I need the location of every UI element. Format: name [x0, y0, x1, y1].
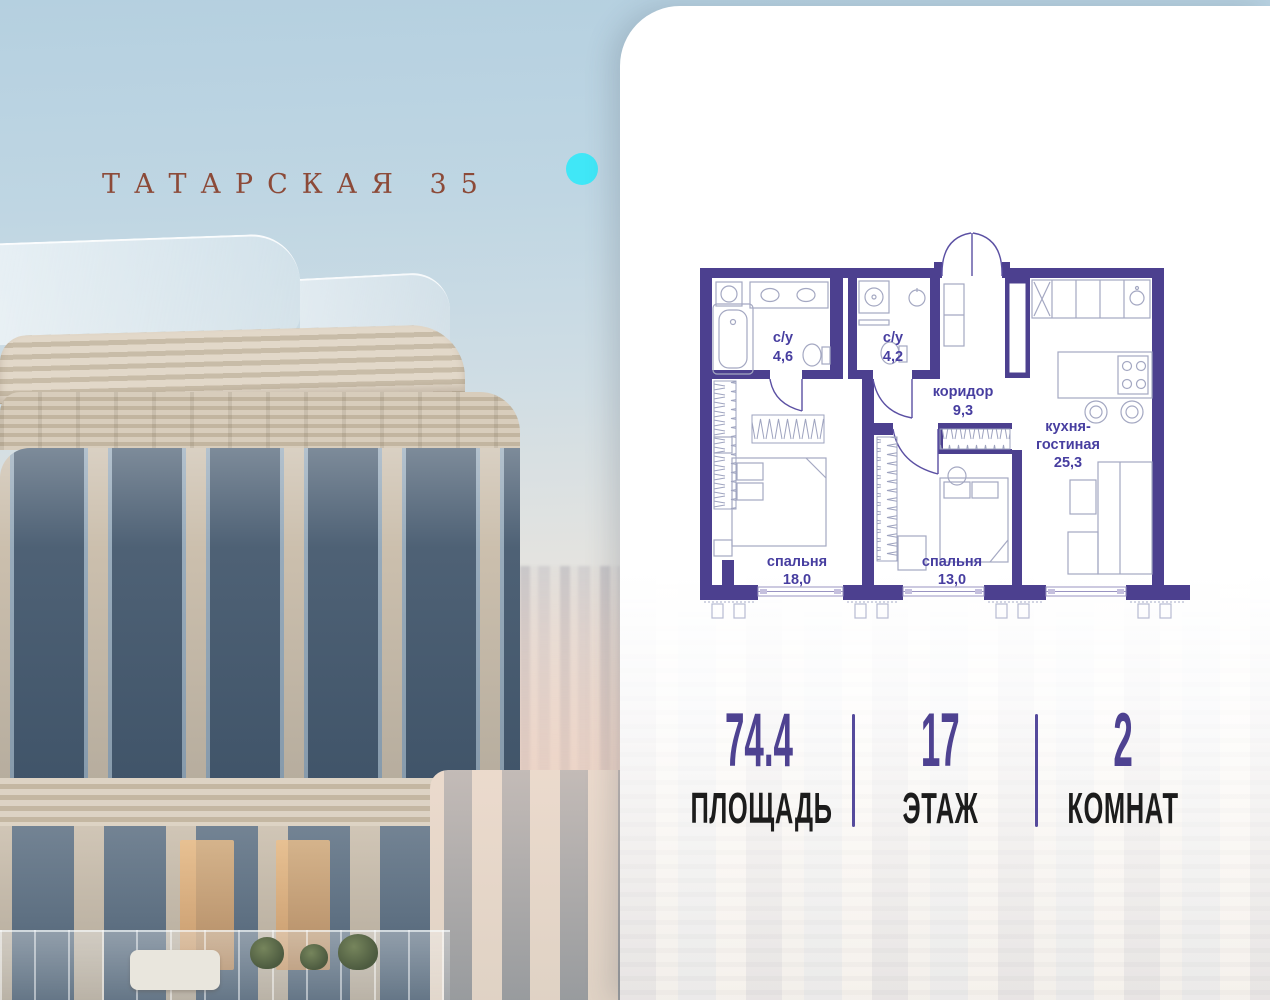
- brand-title: ТАТАРСКАЯ 35: [102, 169, 492, 201]
- room-area-bedroom-2: 13,0: [938, 572, 966, 588]
- room-area-bathroom-1: 4,6: [773, 349, 793, 365]
- room-area-bedroom-1: 18,0: [783, 572, 811, 588]
- screenshot-root: ТАТАРСКАЯ 35: [0, 0, 1270, 1000]
- terrace-sofa: [130, 950, 220, 990]
- room-label-bathroom-2: с/у: [883, 330, 903, 346]
- room-label-kitchen-line1: кухня-: [1045, 419, 1091, 435]
- stat-rooms-value: 2: [1003, 712, 1243, 774]
- building-facade-windows: [0, 448, 520, 778]
- room-label-bedroom-1: спальня: [767, 554, 827, 570]
- room-area-corridor: 9,3: [953, 403, 973, 419]
- roof-glass-parapet: [0, 233, 300, 345]
- room-area-bathroom-2: 4,2: [883, 349, 903, 365]
- terrace-plant: [250, 937, 284, 969]
- stat-rooms: 2 КОМНАТ: [1003, 712, 1243, 828]
- room-label-bathroom-1: с/у: [773, 330, 793, 346]
- stats-row: 74.4 ПЛОЩАДЬ 17 ЭТАЖ 2 КОМНАТ: [620, 712, 1270, 842]
- room-label-bedroom-2: спальня: [922, 554, 982, 570]
- terrace-plant: [300, 944, 328, 970]
- building-stone-band: [0, 392, 520, 450]
- room-area-kitchen: 25,3: [1054, 455, 1082, 471]
- plan-windows: [704, 587, 1186, 618]
- building-side-wing: [430, 770, 620, 1000]
- room-label-corridor: коридор: [933, 384, 994, 400]
- brand-dot-icon: [566, 153, 598, 185]
- ventilation-shaft: [1009, 283, 1026, 373]
- lower-terrace: [0, 930, 450, 1000]
- floor-plan: с/у 4,6 с/у 4,2 коридор 9,3 кухня- гости…: [690, 228, 1200, 628]
- terrace-plant: [338, 934, 378, 970]
- apartment-card: с/у 4,6 с/у 4,2 коридор 9,3 кухня- гости…: [620, 6, 1270, 1000]
- stat-rooms-label: КОМНАТ: [1003, 790, 1243, 828]
- room-label-kitchen-line2: гостиная: [1036, 437, 1100, 453]
